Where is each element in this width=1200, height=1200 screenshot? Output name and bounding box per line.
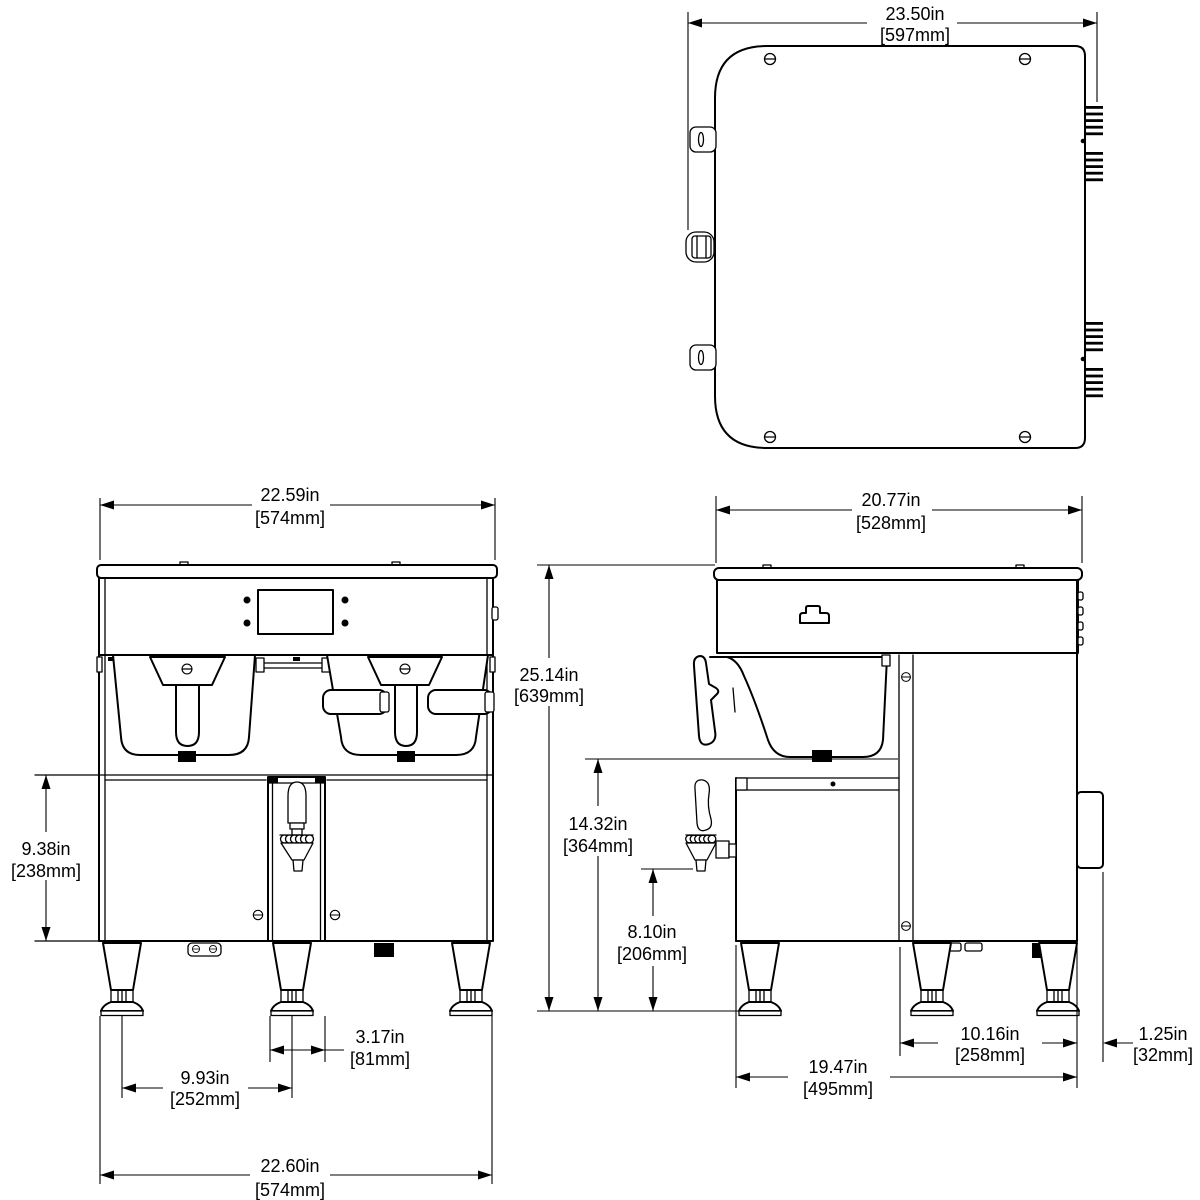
relief-valve [288,782,306,823]
funnel-wing-handle [323,690,387,714]
dim-label: [597mm] [880,25,950,45]
display-screen [258,590,333,634]
mounting-tab [690,345,716,370]
drip-outlet [178,751,196,762]
screw-icon [1020,54,1031,65]
button-dot [244,597,251,604]
dim-label: [639mm] [514,686,584,706]
dim-label: 9.38in [21,839,70,859]
screw-icon [1020,432,1031,443]
drip-outlet [812,750,832,762]
drip-outlet [397,751,415,762]
screw-icon [192,945,199,952]
dim-label: 23.50in [885,4,944,24]
dim-label: 25.14in [519,665,578,685]
dim-label: 22.59in [260,485,319,505]
funnel-wing-handle [428,690,492,714]
dim-label: [238mm] [11,861,81,881]
dim-label: 9.93in [180,1068,229,1088]
button-dot [342,597,349,604]
top-lid [714,568,1082,580]
screw-icon [400,664,410,674]
technical-drawing: 23.50in [597mm] [0,0,1200,1200]
left-brew-funnel [113,655,255,762]
control-display [244,590,349,634]
hot-water-tower [268,777,325,941]
dim-label: [258mm] [955,1045,1025,1065]
screw-icon [209,945,216,952]
dim-label: [81mm] [350,1049,410,1069]
spec-drawing-page: 23.50in [597mm] [0,0,1200,1200]
water-inlet-fitting [686,232,714,262]
button-dot [342,620,349,627]
dim-label: 1.25in [1138,1024,1187,1044]
dim-label: [252mm] [170,1089,240,1109]
dim-label: [574mm] [255,1180,325,1200]
rear-protrusion [1077,792,1103,868]
dim-label: 19.47in [808,1057,867,1077]
hinge-pin [492,607,498,620]
screw-icon [330,910,339,919]
drain-block [374,943,394,957]
dim-label: [32mm] [1133,1045,1193,1065]
dim-label: 14.32in [568,814,627,834]
screw-icon [182,664,192,674]
screw-icon [902,922,911,931]
dim-label: 20.77in [861,490,920,510]
top-view: 23.50in [597mm] [686,4,1103,448]
button-dot [244,620,251,627]
screw-icon [902,673,911,682]
faucet-handle [695,780,712,831]
dim-label: 8.10in [627,922,676,942]
spout [696,860,706,871]
dim-label: [206mm] [617,944,687,964]
dim-label: [495mm] [803,1079,873,1099]
dim-label: 10.16in [960,1024,1019,1044]
dim-label: [528mm] [856,513,926,533]
top-lid [97,565,497,578]
spout [293,860,303,871]
dim-label: 3.17in [355,1027,404,1047]
dim-label: [574mm] [255,508,325,528]
screw-icon [765,432,776,443]
mounting-tab [690,127,716,152]
screw-icon [253,910,262,919]
screw-icon [765,54,776,65]
upper-housing [717,580,1078,653]
dim-label: [364mm] [563,836,633,856]
dim-label: 22.60in [260,1156,319,1176]
top-view-body [715,46,1085,448]
right-brew-funnel [323,655,494,762]
